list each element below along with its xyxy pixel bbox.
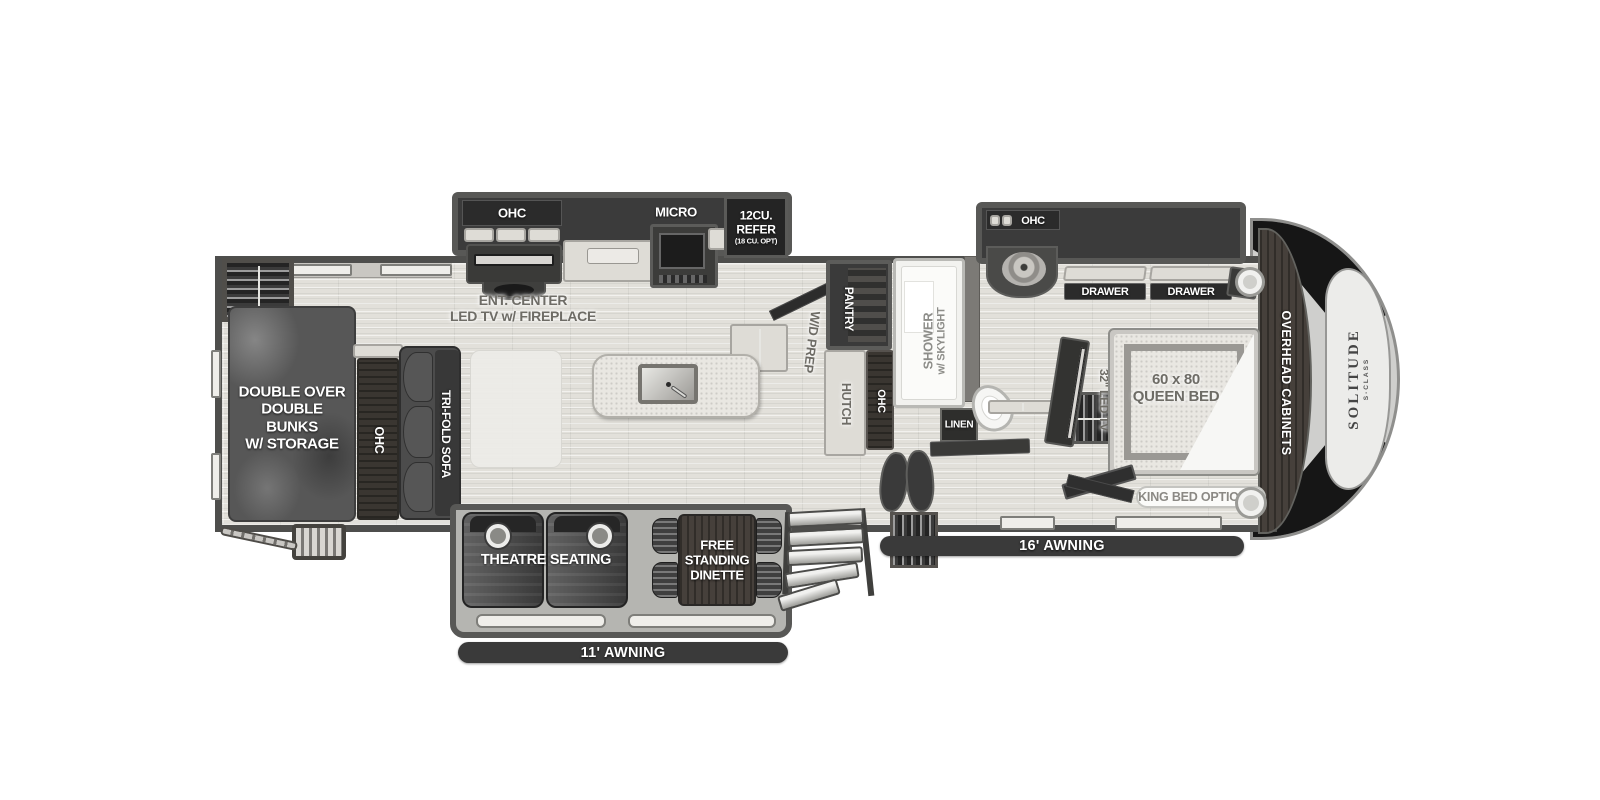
dinette-label: FREE STANDING DINETTE xyxy=(679,538,755,583)
island-sink xyxy=(638,364,698,404)
dinette-chair-3 xyxy=(756,518,782,554)
theatre-seating-label: THEATRE SEATING xyxy=(481,552,611,568)
shower-label: SHOWER w/ SKYLIGHT xyxy=(921,308,948,375)
kitchen-ohc-door-2 xyxy=(496,228,526,242)
brand-logo: SOLITUDE S-CLASS xyxy=(1346,328,1370,430)
tri-fold-sofa-label: TRI-FOLD SOFA xyxy=(439,390,453,478)
drawer-left: DRAWER xyxy=(1064,283,1146,300)
rug xyxy=(470,350,562,468)
kitchen-counter xyxy=(563,240,657,282)
bath-mirror-doors xyxy=(988,400,1056,414)
shower: SHOWER w/ SKYLIGHT xyxy=(893,258,965,408)
window-top-1 xyxy=(292,264,352,276)
drawer-right: DRAWER xyxy=(1150,283,1232,300)
hutch-label: HUTCH xyxy=(839,383,853,425)
floorplan-canvas: SOLITUDE S-CLASS OVERHEAD CABINETS DOUBL… xyxy=(0,0,1600,800)
window-left-1 xyxy=(211,350,221,398)
hutch: HUTCH xyxy=(824,350,866,456)
entry-step-2 xyxy=(788,527,865,547)
nightstand-lamp xyxy=(1238,270,1262,294)
refrigerator-label: 12CU. REFER (18 CU. OPT) xyxy=(726,209,786,246)
window-left-2 xyxy=(211,453,221,500)
pantry: PANTRY xyxy=(826,260,892,350)
kitchen-ohc-label: OHC xyxy=(498,206,526,221)
dinette-table: FREE STANDING DINETTE xyxy=(678,514,756,606)
brand-class: S-CLASS xyxy=(1363,328,1370,430)
bunk-bed-label: DOUBLE OVER DOUBLE BUNKS W/ STORAGE xyxy=(227,384,357,453)
bath-ohc-label: OHC xyxy=(1021,215,1045,227)
bath-sink xyxy=(1002,252,1046,286)
king-bed-knob xyxy=(1238,490,1264,516)
bunk-ohc-shelf xyxy=(353,344,403,358)
slide-window-left xyxy=(476,614,606,628)
linen-label: LINEN xyxy=(945,420,974,431)
drawer-panel-left xyxy=(1063,266,1147,281)
drawer-panel-right xyxy=(1149,266,1233,281)
bath-wall xyxy=(964,256,980,402)
entry-step-1 xyxy=(788,508,865,528)
sink-faucet xyxy=(670,385,687,399)
window-top-2 xyxy=(380,264,452,276)
cupholder-left xyxy=(486,524,510,548)
overhead-cabinets-label: OVERHEAD CABINETS xyxy=(1279,310,1293,455)
slide-window-right xyxy=(628,614,776,628)
queen-bed-label: 60 x 80 QUEEN BED xyxy=(1121,371,1231,406)
ent-center-label: ENT. CENTER LED TV w/ FIREPLACE xyxy=(438,292,608,324)
awning-11: 11' AWNING xyxy=(458,642,788,663)
refrigerator: 12CU. REFER (18 CU. OPT) xyxy=(724,196,788,258)
window-bottom-2 xyxy=(1115,516,1222,530)
dinette-chair-2 xyxy=(652,562,678,598)
hall-ohc-label: OHC xyxy=(875,389,887,413)
dinette-chair-1 xyxy=(652,518,678,554)
bath-ohc-cabinet: OHC xyxy=(986,210,1060,230)
bath-vanity xyxy=(986,246,1058,298)
bunk-ohc-label: OHC xyxy=(372,427,386,454)
exterior-step-grill xyxy=(292,524,346,560)
kitchen-ohc-door-1 xyxy=(464,228,494,242)
brand-name: SOLITUDE xyxy=(1346,328,1363,430)
awning-16: 16' AWNING xyxy=(880,536,1244,556)
kitchen-ohc-door-3 xyxy=(528,228,560,242)
cupholder-right xyxy=(588,524,612,548)
ent-center-tv xyxy=(474,254,554,266)
tri-fold-sofa: TRI-FOLD SOFA xyxy=(399,346,461,520)
sink-drain xyxy=(666,382,671,387)
window-bottom-1 xyxy=(1000,516,1055,530)
pantry-label: PANTRY xyxy=(842,287,854,331)
kitchen-ohc-cabinet: OHC xyxy=(462,200,562,226)
hall-ohc-cabinet: OHC xyxy=(866,350,894,450)
dinette-chair-4 xyxy=(756,562,782,598)
micro-label: MICRO xyxy=(655,205,697,220)
bunk-ohc-cabinet: OHC xyxy=(357,358,399,520)
entry-steps xyxy=(784,508,875,608)
